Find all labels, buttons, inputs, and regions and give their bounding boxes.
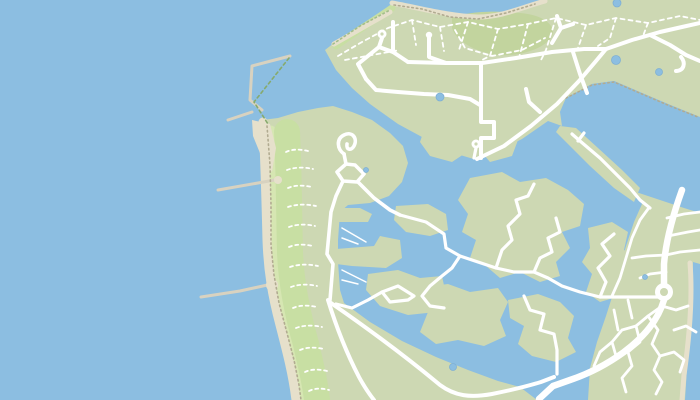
map-canvas[interactable]	[0, 0, 700, 400]
map-viewport	[0, 0, 700, 400]
roundabout-center	[660, 288, 668, 296]
